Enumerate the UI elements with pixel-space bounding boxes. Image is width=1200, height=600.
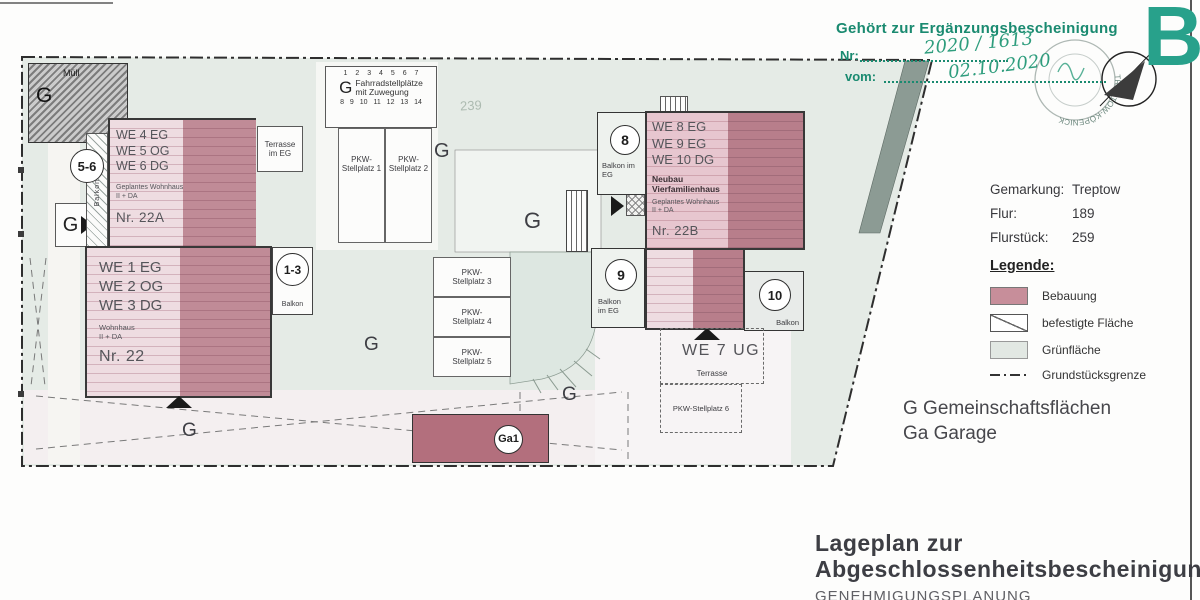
building-22-we-list: WE 1 EG WE 2 OG WE 3 DG	[99, 258, 184, 315]
we7-terrasse-box: Terrasse	[660, 328, 764, 384]
building-22b-type: Geplantes Wohnhaus II + DA	[652, 199, 728, 216]
walkway-strip	[48, 143, 80, 464]
legend: Legende: Bebauung befestigte Fläche Grün…	[990, 258, 1175, 391]
muell-label: Müll	[63, 68, 80, 78]
gruenflaeche-swatch	[990, 341, 1028, 359]
parking-spot-1-label: PKW- Stellplatz 1	[339, 155, 384, 173]
g-label-center: G	[364, 334, 379, 356]
building-22b-lower-dark	[693, 250, 743, 328]
building-22: WE 1 EG WE 2 OG WE 3 DG Wohnhaus II + DA…	[85, 246, 272, 398]
parking-spot-3-label: PKW- Stellplatz 3	[452, 268, 491, 286]
parking-spot-6-label: PKW-Stellplatz 6	[673, 404, 729, 413]
parking-spot-4: PKW- Stellplatz 4	[433, 297, 511, 337]
note-gemeinschaftsflaechen: G Gemeinschaftsflächen	[903, 396, 1111, 421]
balkon-label-10: Balkon	[776, 318, 799, 327]
note-garage: Ga Garage	[903, 421, 1111, 446]
bike-numbers-bottom: 8 9 10 11 12 13 14	[328, 99, 434, 106]
drawing-title-line1: Lageplan zur	[815, 530, 1200, 556]
balkon-badge-10: 10	[759, 279, 791, 311]
balkon-strip-label: Balkon	[94, 179, 101, 206]
building-22-number: Nr. 22	[99, 348, 184, 366]
grenze-line-swatch	[990, 370, 1028, 380]
flur-label: Flur:	[990, 206, 1072, 221]
drawing-title: Lageplan zur Abgeschlossenheitsbescheini…	[815, 530, 1200, 582]
entrance-triangle-building-22b	[611, 196, 624, 216]
terrasse-eg-box: Terrasse im EG	[257, 126, 303, 172]
balkon-box-8: 8 Balkon im EG	[597, 112, 648, 195]
befestigte-flaeche-swatch	[990, 314, 1028, 332]
stamp-nr-label: Nr:	[840, 48, 859, 63]
stamp-vom-label: vom:	[845, 69, 876, 84]
legend-item-befestigt: befestigte Fläche	[990, 314, 1175, 332]
entrance-canopy-hatch	[626, 194, 645, 216]
bebauung-swatch	[990, 287, 1028, 305]
g-label-driveway: G	[182, 420, 197, 442]
sheet-letter-b: B	[1143, 0, 1200, 85]
stamp-vom-dotted-line	[884, 81, 1106, 83]
legend-item-bebauung: Bebauung	[990, 287, 1175, 305]
parking-spot-5-label: PKW- Stellplatz 5	[452, 348, 491, 366]
garage-ga1: Ga1	[412, 414, 549, 463]
balkon-label-9: Balkon im EG	[598, 297, 621, 315]
balkon-badge-8: 8	[610, 125, 640, 155]
legend-label: befestigte Fläche	[1042, 316, 1133, 330]
flur-value: 189	[1072, 206, 1095, 221]
bike-caption: Fahrradstellplätze mit Zuwegung	[355, 79, 423, 98]
parcel-row: Flurstück:259	[990, 230, 1170, 245]
stairs-center	[566, 190, 588, 252]
bike-caption-line2: mit Zuwegung	[355, 88, 423, 98]
gemarkung-label: Gemarkung:	[990, 182, 1072, 197]
bike-numbers-top: 1 2 3 4 5 6 7	[328, 70, 434, 77]
parking-spot-4-label: PKW- Stellplatz 4	[452, 308, 491, 326]
g-label-court: G	[524, 208, 541, 234]
parking-spot-1: PKW- Stellplatz 1	[338, 128, 385, 243]
site-plan-page: TREPTOW-KÖPENICK Gehört zur Ergänzungsbe…	[0, 0, 1200, 600]
legend-item-gruen: Grünfläche	[990, 341, 1175, 359]
bike-center: G Fahrradstellplätze mit Zuwegung	[328, 78, 434, 98]
title-block: Lageplan zur Abgeschlossenheitsbescheini…	[815, 530, 1200, 600]
building-22-text: WE 1 EG WE 2 OG WE 3 DG Wohnhaus II + DA…	[99, 258, 184, 366]
flurstueck-label: Flurstück:	[990, 230, 1072, 245]
entrance-g-label: G	[63, 214, 79, 237]
drawing-title-line2: Abgeschlossenheitsbescheinigung	[815, 556, 1200, 582]
abbreviation-notes: G Gemeinschaftsflächen Ga Garage	[903, 396, 1111, 446]
building-22b-number: Nr. 22B	[652, 223, 728, 238]
legend-label: Bebauung	[1042, 289, 1097, 303]
g-label-ramp: G	[562, 384, 577, 406]
balkon-box-10: 10 Balkon	[744, 271, 804, 331]
building-22a-number: Nr. 22A	[116, 210, 188, 225]
balkon-badge-9: 9	[605, 259, 637, 291]
g-label-parking: G	[434, 140, 450, 163]
parcel-info: Gemarkung:Treptow Flur:189 Flurstück:259	[990, 182, 1170, 254]
building-22-type: Wohnhaus II + DA	[99, 323, 184, 341]
parking-spot-2-label: PKW- Stellplatz 2	[386, 155, 431, 173]
parking-spot-2: PKW- Stellplatz 2	[385, 128, 432, 243]
building-22b-we-list: WE 8 EG WE 9 EG WE 10 DG	[652, 119, 728, 169]
entrance-triangle-building-22	[166, 396, 192, 408]
signature-squiggle	[1058, 63, 1084, 79]
building-22b-lower-wing	[645, 250, 745, 330]
building-22b: WE 8 EG WE 9 EG WE 10 DG Neubau Vierfami…	[645, 111, 805, 250]
building-22b-dark-wing	[728, 113, 803, 248]
neighbor-parcel-number: 239	[460, 97, 482, 113]
building-22a: WE 4 EG WE 5 OG WE 6 DG Geplantes Wohnha…	[108, 118, 256, 256]
legend-title: Legende:	[990, 258, 1175, 274]
parking-spot-5: PKW- Stellplatz 5	[433, 337, 511, 377]
building-22b-text: WE 8 EG WE 9 EG WE 10 DG Neubau Vierfami…	[652, 119, 728, 238]
balkon-badge-1-3: 1-3	[276, 253, 309, 286]
balkon-label-1-3: Balkon	[273, 301, 312, 308]
gemarkung-value: Treptow	[1072, 182, 1120, 197]
bike-g-label: G	[339, 78, 352, 98]
balkon-label-8: Balkon im EG	[602, 161, 635, 179]
building-22a-text: WE 4 EG WE 5 OG WE 6 DG Geplantes Wohnha…	[116, 128, 188, 225]
parcel-row: Gemarkung:Treptow	[990, 182, 1170, 197]
bike-parking-box: 1 2 3 4 5 6 7 G Fahrradstellplätze mit Z…	[325, 66, 437, 128]
balkon-badge-5-6: 5-6	[70, 149, 104, 183]
legend-label: Grünfläche	[1042, 343, 1101, 357]
we7-terrasse-label: Terrasse	[661, 369, 763, 378]
balkon-box-1-3: 1-3 Balkon	[272, 247, 313, 315]
building-22a-dark-wing	[183, 120, 256, 254]
building-22a-we-list: WE 4 EG WE 5 OG WE 6 DG	[116, 128, 188, 175]
building-22b-name: Neubau Vierfamilienhaus	[652, 174, 728, 195]
terrasse-eg-label: Terrasse im EG	[258, 140, 302, 158]
parking-spot-6: PKW-Stellplatz 6	[660, 384, 742, 433]
garage-ga1-badge: Ga1	[494, 425, 523, 454]
drawing-subtitle: GENEHMIGUNGSPLANUNG	[815, 588, 1200, 600]
building-22-dark-wing	[180, 248, 270, 396]
balkon-box-9: 9 Balkon im EG	[591, 248, 645, 328]
flurstueck-value: 259	[1072, 230, 1095, 245]
legend-label: Grundstücksgrenze	[1042, 368, 1146, 382]
building-22a-type: Geplantes Wohnhaus II + DA	[116, 183, 188, 201]
parking-spot-3: PKW- Stellplatz 3	[433, 257, 511, 297]
muell-g-label: G	[36, 84, 52, 108]
parcel-row: Flur:189	[990, 206, 1170, 221]
legend-item-grenze: Grundstücksgrenze	[990, 368, 1175, 382]
